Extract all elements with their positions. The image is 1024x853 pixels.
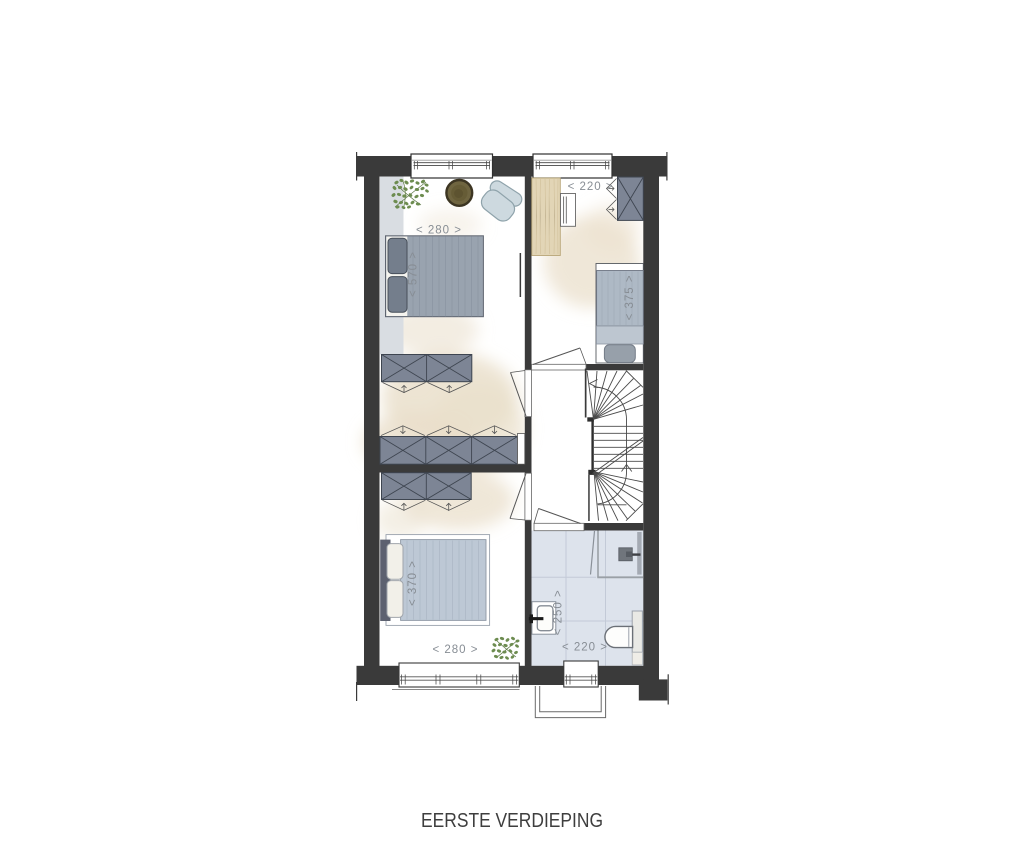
svg-text:< 220 >: < 220 > — [568, 181, 614, 193]
svg-text:< 375 >: < 375 > — [624, 274, 636, 320]
svg-text:< 370 >: < 370 > — [407, 560, 419, 606]
svg-text:< 280 >: < 280 > — [432, 644, 478, 656]
svg-text:< 570 >: < 570 > — [408, 251, 420, 297]
svg-text:< 250 >: < 250 > — [553, 589, 565, 635]
svg-text:< 220 >: < 220 > — [562, 642, 608, 654]
svg-text:< 280 >: < 280 > — [416, 225, 462, 237]
svg-text:EERSTE VERDIEPING: EERSTE VERDIEPING — [421, 809, 603, 832]
